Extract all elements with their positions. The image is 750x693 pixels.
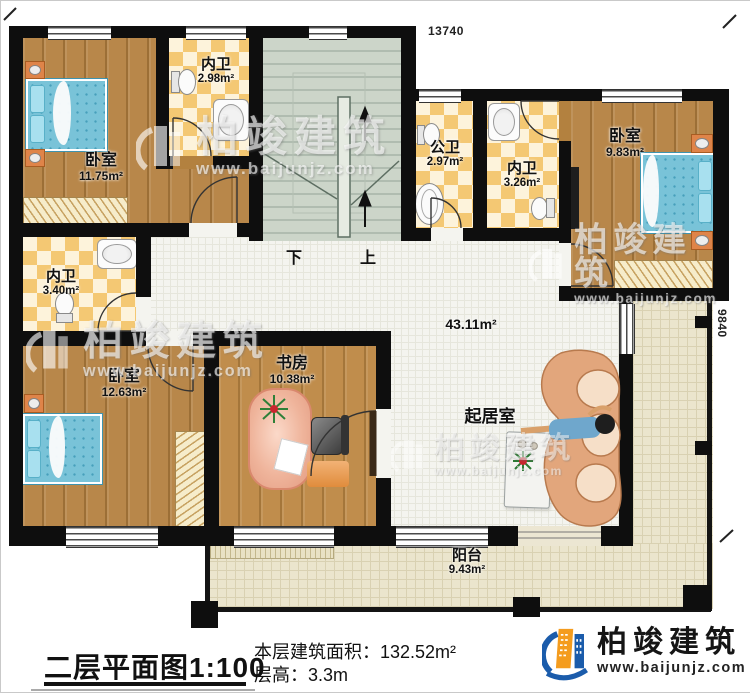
window	[186, 26, 246, 40]
sink-icon	[488, 103, 520, 141]
room-name: 卧室	[102, 369, 147, 386]
wall	[713, 89, 729, 301]
room-label-ensuite-left: 内卫 3.40m²	[43, 269, 79, 297]
wall	[249, 26, 263, 241]
door-opening	[173, 156, 213, 169]
floor-stats: 本层建筑面积：132.52m² 层高：3.3m	[254, 641, 456, 688]
room-name: 卧室	[79, 153, 123, 170]
room-label-bedroom-top-left: 卧室 11.75m²	[79, 153, 123, 182]
column	[683, 585, 711, 610]
window	[602, 89, 682, 103]
tv-icon	[571, 167, 579, 229]
room-label-balcony: 阳台 9.43m²	[449, 548, 485, 576]
column	[695, 441, 712, 455]
toilet-icon	[56, 313, 73, 323]
wardrobe	[23, 197, 128, 225]
window	[309, 26, 347, 40]
door-opening	[189, 223, 237, 237]
office-chair	[311, 417, 343, 455]
wall	[156, 38, 169, 156]
sink-icon	[97, 239, 137, 269]
floor-plan: 卧室 11.75m² 内卫 2.98m² 公卫 2.97m² 内卫 3.26m²…	[0, 0, 750, 693]
floor-area-value: 132.52m²	[380, 642, 456, 662]
pillow	[27, 450, 41, 478]
room-name: 卧室	[606, 129, 644, 146]
bed-sheet	[53, 81, 71, 145]
wall	[204, 331, 391, 346]
balcony-rail	[707, 301, 712, 611]
room-label-living-area: 43.11m²	[445, 317, 496, 332]
dimension-top: 13740	[428, 24, 464, 38]
toilet-icon	[178, 69, 196, 95]
window	[419, 89, 461, 103]
room-label-bedroom-bottom-left: 卧室 12.63m²	[102, 369, 147, 398]
balcony-door-opening	[518, 526, 601, 546]
room-area: 9.83m²	[606, 146, 644, 159]
balcony-rail	[191, 607, 711, 612]
pillow	[30, 115, 45, 143]
bed-sheet	[49, 416, 65, 478]
company-name: 柏竣建筑	[597, 628, 746, 658]
wall	[559, 288, 729, 301]
room-label-bedroom-top-right: 卧室 9.83m²	[606, 129, 644, 158]
room-label-living-name: 起居室	[465, 408, 516, 426]
room-name: 起居室	[465, 408, 516, 426]
wall	[473, 89, 487, 228]
pillow	[698, 193, 712, 223]
wardrobe	[175, 431, 206, 530]
company-logo: 柏竣建筑 www.baijunjz.com	[542, 621, 746, 683]
window	[234, 526, 334, 548]
toilet-icon	[546, 198, 555, 218]
pillow	[27, 420, 41, 448]
room-label-public-bath: 公卫 2.97m²	[427, 140, 463, 168]
window	[619, 304, 635, 354]
wardrobe	[614, 260, 713, 290]
room-area: 43.11m²	[445, 317, 496, 332]
room-label-ensuite-top: 内卫 2.98m²	[198, 57, 234, 85]
title-underline-thin	[31, 689, 255, 691]
stairs-down-label: 下	[286, 244, 302, 268]
pillow	[698, 161, 712, 191]
floor-height-label: 层高：	[254, 665, 308, 685]
title-underline-thick	[44, 682, 246, 686]
window	[396, 526, 488, 548]
room-label-ensuite-top-right: 内卫 3.26m²	[504, 161, 540, 189]
company-logo-icon	[542, 621, 590, 683]
floor-balcony-right	[633, 301, 713, 543]
stairs-up-label: 上	[360, 244, 376, 268]
room-area: 9.43m²	[449, 564, 485, 576]
sink-icon	[415, 183, 444, 225]
door-opening	[559, 243, 571, 286]
room-name: 书房	[270, 356, 315, 373]
room-area: 10.38m²	[270, 373, 315, 386]
room-area: 2.98m²	[198, 73, 234, 85]
door-opening	[559, 101, 571, 141]
room-name: 公卫	[427, 140, 463, 156]
dimension-right: 9840	[715, 309, 729, 338]
wall	[9, 26, 23, 546]
column	[695, 316, 712, 328]
door-opening	[136, 297, 151, 331]
nightstand	[691, 231, 713, 250]
door-opening	[146, 331, 193, 346]
nightstand	[25, 149, 45, 167]
room-name: 内卫	[43, 269, 79, 285]
company-website: www.baijunjz.com	[597, 661, 746, 676]
wall	[204, 331, 219, 546]
room-area: 3.26m²	[504, 177, 540, 189]
plan-title: 二层平面图	[44, 652, 189, 683]
balcony-rail	[205, 546, 210, 608]
column	[191, 601, 218, 628]
office-chair-back	[341, 415, 349, 455]
room-name: 内卫	[504, 161, 540, 177]
room-label-study: 书房 10.38m²	[270, 356, 315, 385]
room-name: 内卫	[198, 57, 234, 73]
nightstand	[691, 134, 713, 153]
title-block: 二层平面图1:100	[44, 646, 266, 686]
room-area: 11.75m²	[79, 170, 123, 183]
coffee-table	[504, 431, 553, 509]
bed-sheet	[643, 155, 659, 227]
nightstand	[24, 394, 44, 413]
room-area: 2.97m²	[427, 156, 463, 168]
pillow	[30, 85, 45, 113]
room-area: 3.40m²	[43, 285, 79, 297]
wall	[401, 26, 416, 241]
column	[513, 597, 540, 617]
nightstand	[25, 61, 45, 79]
window	[48, 26, 111, 40]
room-name: 阳台	[449, 548, 485, 564]
floor-stairwell	[263, 38, 401, 241]
room-area: 12.63m²	[102, 386, 147, 399]
window	[66, 526, 158, 548]
floor-height-value: 3.3m	[308, 665, 348, 685]
wall	[416, 89, 729, 101]
sink-icon	[213, 99, 249, 141]
door-opening	[431, 228, 463, 241]
side-table	[307, 461, 349, 487]
door-opening	[376, 409, 391, 478]
floor-area-label: 本层建筑面积：	[254, 642, 380, 662]
